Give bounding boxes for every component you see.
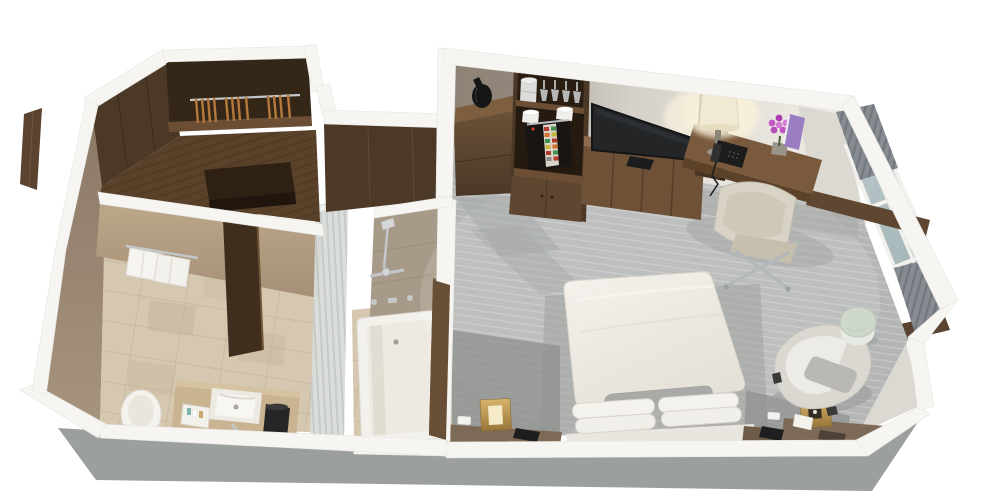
- amenity-bottle: [193, 410, 197, 417]
- minibar-cabinet: [509, 60, 590, 222]
- tile-accent: [147, 300, 196, 336]
- wall-cap-south-main: [444, 440, 868, 458]
- knob: [541, 195, 544, 198]
- brass-cube-lamp-left: [480, 398, 512, 431]
- amenity-bottle: [199, 411, 203, 418]
- console-front: [454, 110, 517, 196]
- wall-outlet: [457, 416, 471, 425]
- wall-outlet: [768, 412, 780, 420]
- coffee-machine: [525, 120, 573, 171]
- table-top: [840, 307, 876, 337]
- decor-vase: [472, 84, 492, 108]
- bin-top: [266, 404, 288, 411]
- tile-accent: [127, 360, 176, 396]
- caster: [786, 287, 791, 292]
- desk-lamp-shade: [699, 94, 739, 128]
- sink-drain: [234, 405, 239, 410]
- tub-handle: [371, 299, 377, 305]
- tub-handle: [407, 295, 413, 301]
- tub-drain: [393, 339, 398, 344]
- knob: [551, 196, 554, 199]
- lamp-bulb: [813, 410, 817, 414]
- valve-knob: [382, 268, 390, 276]
- ice-bucket-lid: [521, 78, 537, 84]
- lamp-diffuser: [488, 405, 503, 425]
- bedroom: [420, 58, 954, 462]
- tub-spout: [388, 297, 397, 303]
- shower-glass-partition: [310, 204, 348, 440]
- amenity-bottle: [187, 408, 191, 415]
- caster: [724, 285, 729, 290]
- welcome-console: [454, 58, 518, 196]
- power-light: [531, 127, 534, 130]
- stems: [779, 136, 780, 146]
- wall-cap-jog2: [316, 84, 336, 114]
- floorplan-svg: [0, 0, 1000, 503]
- side-table: [840, 307, 876, 345]
- toilet-seat: [128, 395, 154, 427]
- floorplan-render: [0, 0, 1000, 503]
